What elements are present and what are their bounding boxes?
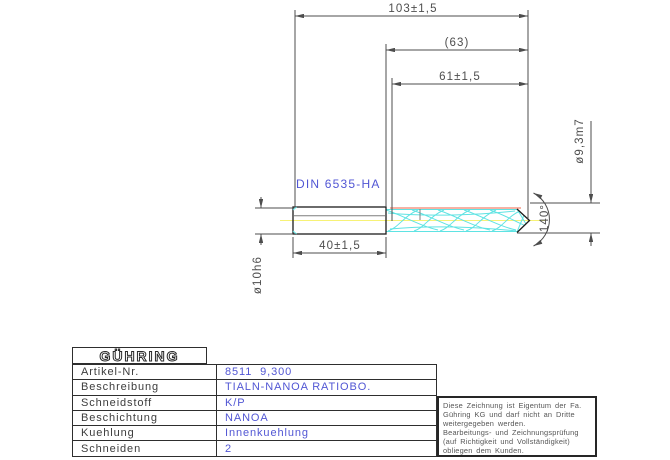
table-row: Beschreibung TIALN-NANOA RATIOBO. [73,380,437,395]
dim-drill-diameter: ø9,3m7 [574,118,586,164]
row-label: Kuehlung [73,426,217,441]
row-value: NANOA [217,410,437,425]
row-label: Schneidstoff [73,395,217,410]
disclaimer-line: obliegen dem Kunden. [443,446,591,455]
row-label: Schneiden [73,441,217,456]
table-row: Schneidstoff K/P [73,395,437,410]
guehring-logo: GÜHRING [99,348,179,364]
table-row: Schneiden 2 [73,441,437,456]
shank-standard-label: DIN 6535-HA [296,177,381,191]
row-value: Innenkuehlung [217,426,437,441]
disclaimer-line: weitergegeben werden. [443,419,591,428]
disclaimer-line: Diese Zeichnung ist Eigentum der Fa. [443,401,591,410]
row-value: 8511 9,300 [217,365,437,380]
row-label: Beschreibung [73,380,217,395]
title-block-table: Artikel-Nr. 8511 9,300 Beschreibung TIAL… [72,364,437,457]
table-row: Beschichtung NANOA [73,410,437,425]
row-value: TIALN-NANOA RATIOBO. [217,380,437,395]
disclaimer-note: Diese Zeichnung ist Eigentum der Fa. Güh… [437,396,597,457]
dim-flute-length-ref: (63) [445,37,470,49]
row-value: 2 [217,441,437,456]
row-value: K/P [217,395,437,410]
disclaimer-line: Bearbeitungs- und Zeichnungsprüfung [443,428,591,437]
dim-shank-diameter: ø10h6 [252,256,264,294]
dim-overall-length: 103±1,5 [388,3,437,15]
dim-point-angle: 140° [539,204,551,232]
row-label: Artikel-Nr. [73,365,217,380]
dim-flute-length: 61±1,5 [439,71,481,83]
dim-shank-length: 40±1,5 [319,240,361,252]
row-label: Beschichtung [73,410,217,425]
table-row: Artikel-Nr. 8511 9,300 [73,365,437,380]
drawing-sheet: 103±1,5 (63) 61±1,5 40±1,5 ø10h6 ø9,3m7 … [0,0,670,460]
logo-box: GÜHRING [72,347,207,364]
disclaimer-line: (auf Richtigkeit und Vollständigkeit) [443,437,591,446]
disclaimer-line: Gühring KG und darf nicht an Dritte [443,410,591,419]
table-row: Kuehlung Innenkuehlung [73,426,437,441]
